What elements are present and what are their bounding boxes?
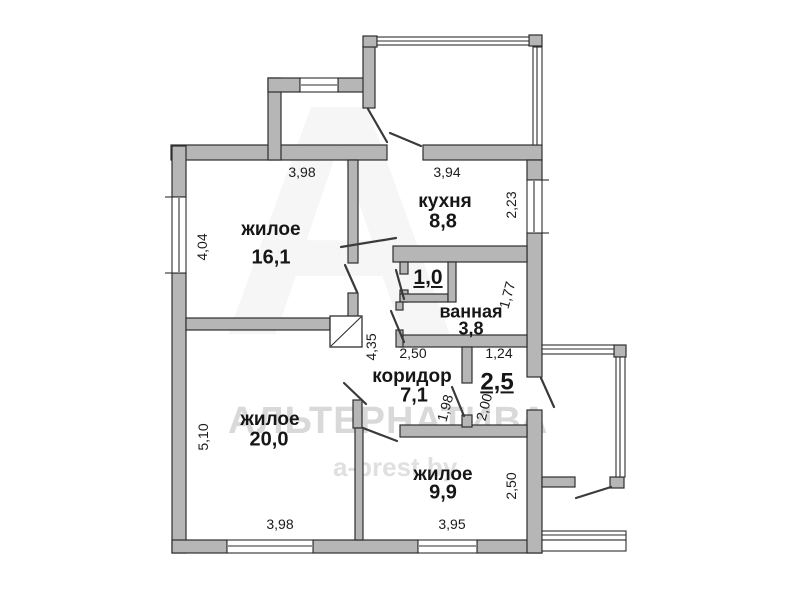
room-label-wc-area: 1,0 <box>413 267 442 289</box>
dim-corridor-width: 2,50 <box>399 345 426 361</box>
dim-top-right: 3,94 <box>433 164 460 180</box>
veranda-glazed-walls <box>377 37 542 145</box>
dim-kitchen-right: 2,23 <box>503 191 519 218</box>
dim-left-lower: 5,10 <box>195 423 211 450</box>
dim-bottom-right: 3,95 <box>438 516 465 532</box>
walls <box>171 35 626 553</box>
room-label-kitchen-name: кухня <box>418 192 471 212</box>
dim-living3-right: 2,50 <box>503 472 519 499</box>
room-label-living3-area: 9,9 <box>429 483 457 504</box>
dim-bottom-left: 3,98 <box>266 516 293 532</box>
room-label-bathroom-area: 3,8 <box>458 320 483 339</box>
room-label-kitchen-area: 8,8 <box>429 212 457 233</box>
porch-rails <box>542 345 626 551</box>
stove <box>330 316 362 347</box>
room-label-corridor-area: 7,1 <box>400 386 428 407</box>
room-label-pantry-area: 2,5 <box>480 369 513 394</box>
floor-plan-page: А АЛЬТЕРНАТИВА a-brest.by <box>0 0 800 599</box>
room-label-living1-area: 16,1 <box>252 248 291 269</box>
room-label-living1-name: жилое <box>241 220 300 240</box>
dim-left-upper: 4,04 <box>194 233 210 260</box>
dim-top-left: 3,98 <box>288 164 315 180</box>
room-label-living2-name: жилое <box>240 410 299 430</box>
dim-hall-vertical: 4,35 <box>363 333 379 360</box>
dim-pantry-width: 1,24 <box>485 345 512 361</box>
room-label-living2-area: 20,0 <box>250 430 289 451</box>
floor-plan-drawing <box>0 0 800 599</box>
